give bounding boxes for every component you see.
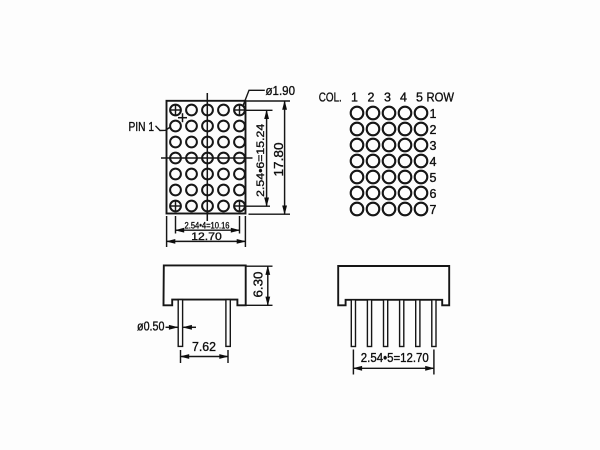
svg-text:1: 1	[430, 107, 437, 121]
svg-text:1: 1	[351, 91, 358, 105]
svg-text:6: 6	[430, 187, 437, 201]
svg-text:ROW: ROW	[427, 91, 455, 105]
svg-text:5: 5	[416, 91, 423, 105]
svg-text:ø1.90: ø1.90	[266, 83, 296, 98]
svg-text:2.54•5=12.70: 2.54•5=12.70	[361, 351, 429, 365]
svg-text:PIN 1: PIN 1	[129, 120, 155, 134]
svg-text:2: 2	[430, 123, 437, 137]
svg-text:5: 5	[430, 171, 437, 185]
svg-text:6.30: 6.30	[251, 271, 265, 297]
svg-text:4: 4	[430, 155, 437, 169]
svg-text:2: 2	[368, 91, 375, 105]
svg-text:2.54•6=15.24: 2.54•6=15.24	[255, 124, 267, 197]
svg-text:7: 7	[430, 203, 437, 217]
svg-text:3: 3	[430, 139, 437, 153]
svg-text:3: 3	[384, 91, 391, 105]
svg-text:17.80: 17.80	[272, 142, 286, 176]
svg-text:12.70: 12.70	[191, 231, 222, 243]
svg-text:ø0.50: ø0.50	[137, 320, 165, 334]
svg-text:4: 4	[400, 91, 407, 105]
svg-text:2.54•4=10.16: 2.54•4=10.16	[185, 221, 230, 231]
svg-text:7.62: 7.62	[192, 340, 216, 354]
svg-text:COL.: COL.	[319, 91, 342, 105]
